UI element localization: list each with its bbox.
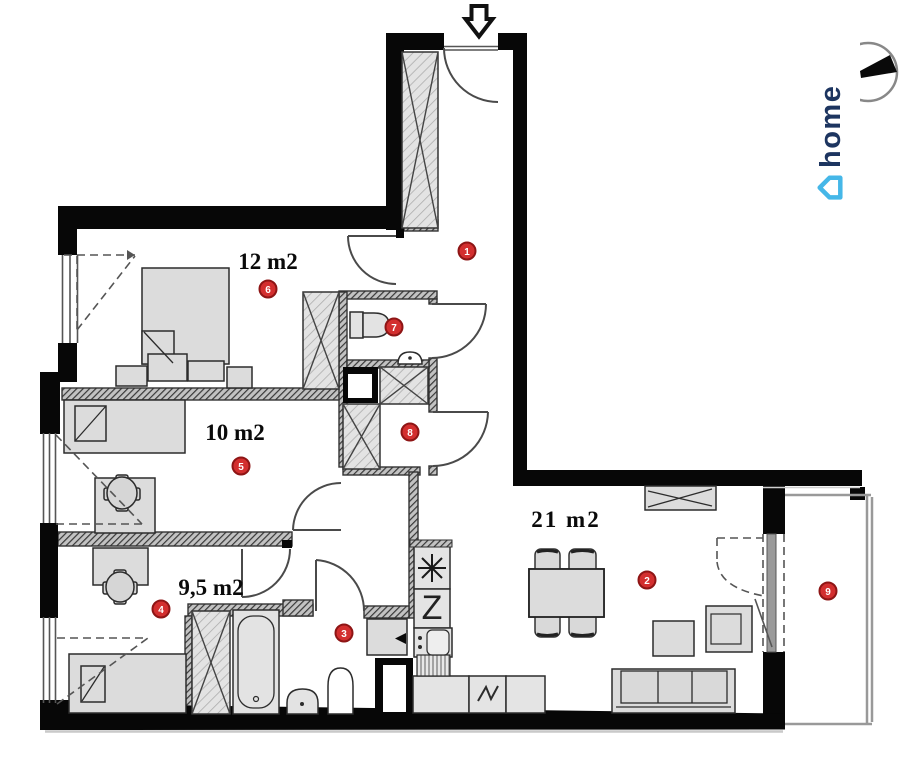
svg-text:8: 8 (407, 428, 413, 439)
svg-text:6: 6 (265, 285, 271, 296)
svg-text:7: 7 (391, 323, 397, 334)
svg-text:9: 9 (825, 587, 831, 598)
svg-text:4: 4 (158, 605, 164, 616)
svg-text:3: 3 (341, 629, 347, 640)
svg-text:1: 1 (464, 247, 470, 258)
svg-text:21 m2: 21 m2 (531, 507, 600, 532)
svg-text:10 m2: 10 m2 (205, 420, 264, 445)
svg-text:home: home (815, 85, 847, 168)
svg-text:12 m2: 12 m2 (238, 249, 297, 274)
svg-text:2: 2 (644, 576, 650, 587)
svg-text:5: 5 (238, 462, 244, 473)
svg-text:Z: Z (422, 589, 443, 627)
svg-text:9,5 m2: 9,5 m2 (178, 575, 243, 600)
